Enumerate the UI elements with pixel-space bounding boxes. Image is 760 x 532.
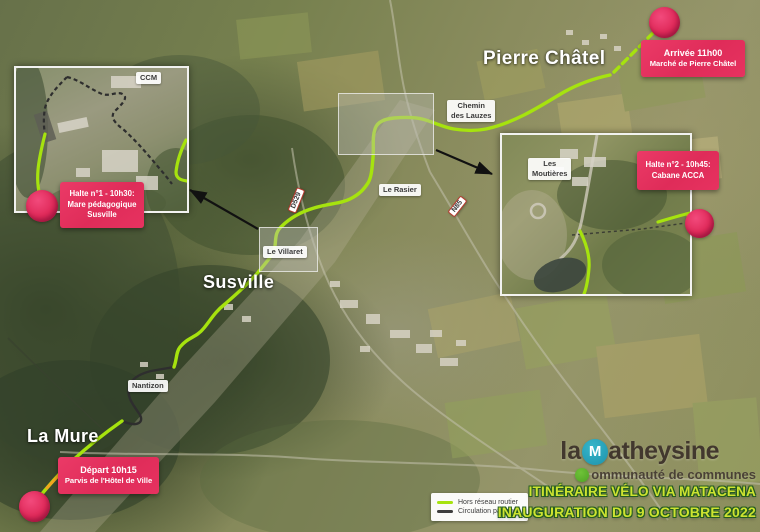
matheysine-logo: la M atheysine ommunauté de communes xyxy=(560,437,756,482)
arrow-to-left-inset xyxy=(190,190,258,229)
satellite-map: Pierre Châtel Susville La Mure CCM Chemi… xyxy=(0,0,760,532)
event-title-line2: INAUGURATION DU 9 OCTOBRE 2022 xyxy=(498,502,756,522)
logo-subtitle-row: ommunauté de communes xyxy=(575,467,756,482)
logo-subtitle-text: ommunauté de communes xyxy=(591,467,756,482)
logo-name-text: atheysine xyxy=(608,437,719,466)
badge-depart: Départ 10h15 Parvis de l'Hôtel de Ville xyxy=(58,457,159,494)
halte2-line1: Halte n°2 - 10h45: xyxy=(637,160,719,171)
halte1-line3: Susville xyxy=(60,210,144,221)
arrow-to-right-inset xyxy=(436,150,492,174)
marker-arrivee xyxy=(649,7,680,38)
arrivee-line2: Marché de Pierre Châtel xyxy=(641,59,745,70)
halte1-line1: Halte n°1 - 10h30: xyxy=(60,189,144,200)
badge-halte1: Halte n°1 - 10h30: Mare pédagogique Susv… xyxy=(60,182,144,228)
badge-arrivee: Arrivée 11h00 Marché de Pierre Châtel xyxy=(641,40,745,77)
logo-m-circle-icon: M xyxy=(582,439,608,465)
marker-halte2 xyxy=(685,209,714,238)
legend-swatch-green-line xyxy=(437,501,453,504)
legend-swatch-dark-line xyxy=(437,510,453,513)
depart-line1: Départ 10h15 xyxy=(58,464,159,477)
event-title-line1: ITINÉRAIRE VÉLO VIA MATACENA xyxy=(498,482,756,502)
logo-la-text: la xyxy=(560,437,581,466)
logo-c-circle-icon xyxy=(575,468,589,482)
arrivee-line1: Arrivée 11h00 xyxy=(641,47,745,60)
badge-halte2: Halte n°2 - 10h45: Cabane ACCA xyxy=(637,151,719,190)
halte2-line2: Cabane ACCA xyxy=(637,171,719,182)
marker-depart xyxy=(19,491,50,522)
halte1-line2: Mare pédagogique xyxy=(60,200,144,211)
depart-line2: Parvis de l'Hôtel de Ville xyxy=(58,476,159,487)
event-title: ITINÉRAIRE VÉLO VIA MATACENA INAUGURATIO… xyxy=(498,482,756,522)
marker-halte1 xyxy=(26,190,58,222)
logo-name-row: la M atheysine xyxy=(560,437,756,466)
